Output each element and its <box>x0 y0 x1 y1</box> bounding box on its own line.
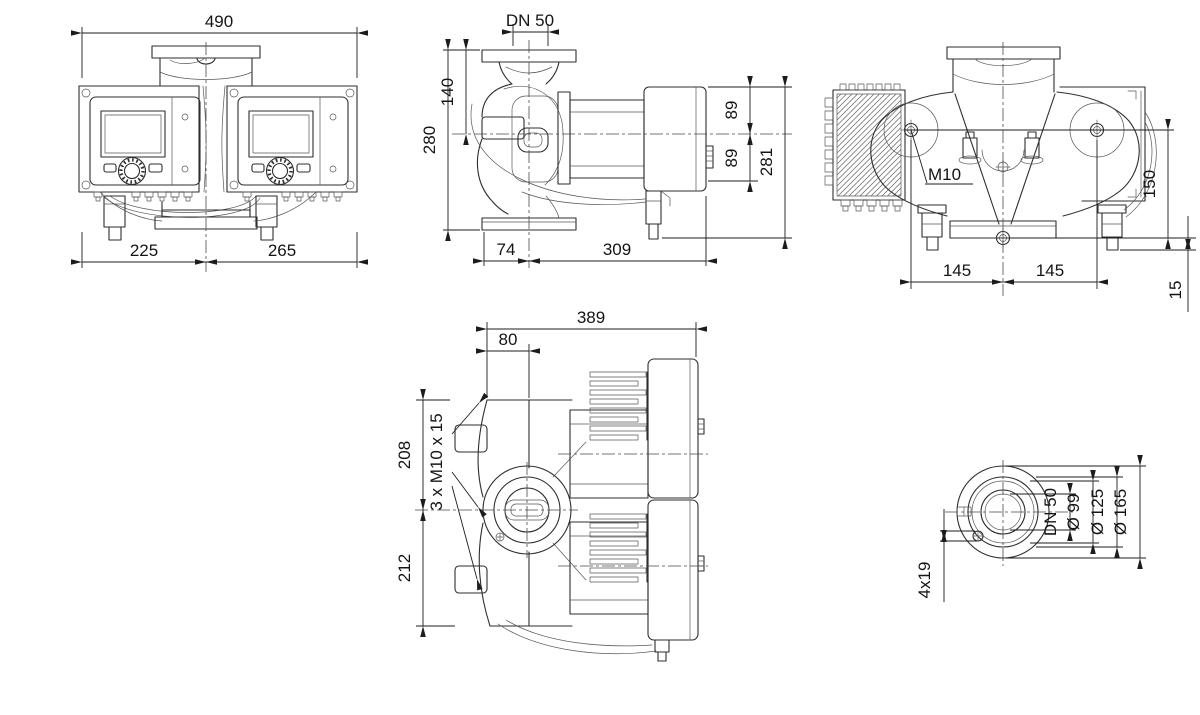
dim-label-flange-165: Ø 165 <box>1111 489 1130 535</box>
button-left-back <box>104 164 116 172</box>
technical-drawing: 490 225 265 <box>0 0 1200 715</box>
dim-label-side-89-top: 89 <box>722 101 741 120</box>
front-view: 490 225 265 <box>79 12 357 272</box>
dim-label-top-208: 208 <box>395 441 414 469</box>
dim-label-side-74: 74 <box>497 240 516 259</box>
dim-label-top-212: 212 <box>395 554 414 582</box>
front-drain-plug-right <box>256 196 277 240</box>
dim-label-side-280: 280 <box>420 126 439 154</box>
dim-label-bottom-145-right: 145 <box>1036 261 1064 280</box>
dim-label-bottom-m10: M10 <box>928 165 961 184</box>
dim-label-side-140: 140 <box>438 78 457 106</box>
top-motor-upper <box>570 359 704 498</box>
dim-label-front-total: 490 <box>205 12 233 31</box>
side-terminal-block <box>706 146 713 168</box>
dim-label-flange-dn: DN 50 <box>1041 488 1060 536</box>
dim-side-bottom: 74 309 <box>484 196 706 266</box>
dim-label-flange-99: Ø 99 <box>1064 494 1083 531</box>
button-right-menu <box>297 164 310 172</box>
dim-bottom-offset: 15 <box>1166 216 1188 312</box>
dim-top-depths: 208 212 <box>395 400 455 626</box>
dim-label-side-89-bottom: 89 <box>722 149 741 168</box>
side-cable-gland <box>646 191 670 239</box>
dim-label-top-bolts: 3 x M10 x 15 <box>427 413 446 510</box>
bottom-view: M10 145 145 150 15 <box>825 42 1196 312</box>
dim-top-length: 389 <box>487 308 696 398</box>
top-gland <box>655 640 669 652</box>
vent-valve-right <box>1021 132 1043 164</box>
dim-flange-holes: 4x19 <box>915 509 977 602</box>
front-control-module-right <box>238 97 348 185</box>
dim-label-top-389: 389 <box>577 308 605 327</box>
bottom-module-hatched <box>825 84 905 211</box>
top-view: 389 80 208 212 3 x M10 x 15 <box>395 308 708 661</box>
dim-label-flange-125: Ø 125 <box>1088 489 1107 535</box>
top-bracket-upper <box>455 425 487 452</box>
top-module-lower <box>648 500 698 640</box>
hatch-area <box>837 94 901 196</box>
button-right-back <box>252 164 264 172</box>
dimensional-drawing-page: 490 225 265 <box>0 0 1200 715</box>
side-view: DN 50 140 280 74 309 89 89 <box>420 11 792 268</box>
button-left-menu <box>149 164 162 172</box>
dim-label-bottom-150: 150 <box>1140 170 1159 198</box>
dim-label-front-right: 265 <box>268 241 296 260</box>
dim-side-dn: DN 50 <box>506 11 554 46</box>
dim-front-width-total: 490 <box>82 12 357 78</box>
top-pump-body <box>455 400 586 626</box>
dim-front-width-left-right: 225 265 <box>82 232 357 268</box>
front-mounting-plate-left <box>79 86 199 192</box>
dim-label-bottom-145-left: 145 <box>943 261 971 280</box>
dim-side-flange-to-axis: 140 <box>438 50 480 134</box>
dim-label-front-left: 225 <box>130 241 158 260</box>
callout-top-flange-bolts: 3 x M10 x 15 <box>427 403 479 579</box>
side-motor <box>558 92 644 184</box>
side-volute <box>477 84 563 218</box>
dim-side-port-to-port: 280 <box>420 50 480 230</box>
dim-label-side-309: 309 <box>603 240 631 259</box>
top-module-upper <box>648 359 698 498</box>
dim-bottom-height: 150 <box>1140 130 1168 238</box>
fins-upper <box>590 372 646 440</box>
flange-bolt-hole <box>973 531 983 541</box>
fins-lower <box>590 514 646 582</box>
bottom-foot-right <box>1098 205 1126 250</box>
top-bracket-lower <box>455 566 487 593</box>
dim-label-side-dn: DN 50 <box>506 11 554 30</box>
flange-view: DN 50 Ø 99 Ø 125 Ø 165 4x19 <box>915 460 1146 602</box>
knob-right <box>267 158 294 185</box>
dim-side-right: 89 89 281 <box>662 87 792 238</box>
dim-label-flange-4x19: 4x19 <box>915 562 934 599</box>
cable-loop <box>104 197 260 217</box>
display-left <box>101 111 165 157</box>
display-right <box>249 111 313 157</box>
dim-label-side-281: 281 <box>757 148 776 176</box>
dim-label-top-80: 80 <box>499 330 518 349</box>
side-module <box>644 87 713 191</box>
dim-top-flange-face: 80 <box>487 330 529 398</box>
front-control-module-left <box>90 97 200 185</box>
knob-left <box>119 158 146 185</box>
bottom-pipe-top <box>947 47 1060 92</box>
dim-label-bottom-15: 15 <box>1166 281 1185 300</box>
